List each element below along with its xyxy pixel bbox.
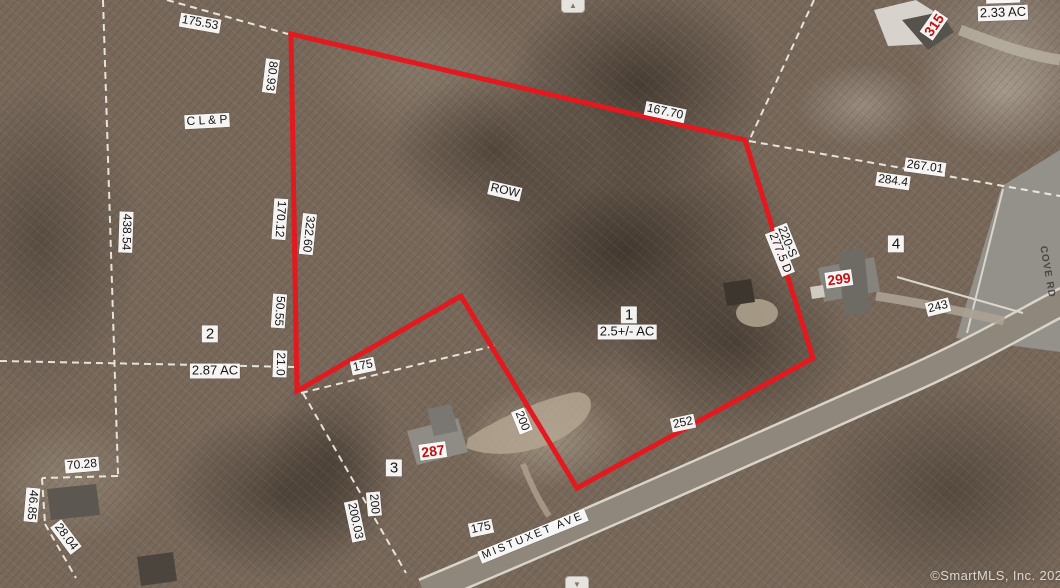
attribution-watermark: ©SmartMLS, Inc. 2021 xyxy=(930,568,1060,583)
dim-267-01: 267.01 xyxy=(904,157,946,176)
lot-number-3: 3 xyxy=(386,459,402,476)
pan-up-button[interactable]: ▲ xyxy=(561,0,585,13)
dim-175-upper: 175 xyxy=(350,357,376,375)
dim-21-0: 21.0 xyxy=(273,350,288,378)
street-mistuxet-ave: MISTUXET AVE xyxy=(477,509,588,564)
dim-46-85: 46.85 xyxy=(24,487,41,522)
house-number-315: 315 xyxy=(920,9,949,41)
dim-170-12: 170.12 xyxy=(272,198,289,240)
area-2-87-ac: 2.87 AC xyxy=(190,364,240,379)
pan-down-button[interactable]: ▼ xyxy=(565,576,589,588)
dim-175-lower: 175 xyxy=(468,519,494,537)
chevron-down-icon: ▼ xyxy=(573,580,581,588)
utility-label-clp: C L & P xyxy=(184,113,230,129)
chevron-up-icon: ▲ xyxy=(569,1,577,10)
dim-322-60: 322.60 xyxy=(299,213,317,255)
dim-243: 243 xyxy=(925,297,952,316)
lot-number-1: 1 xyxy=(621,306,637,323)
dim-80-93: 80.93 xyxy=(262,58,280,93)
house-number-287: 287 xyxy=(418,441,447,461)
dim-200-03: 200.03 xyxy=(344,500,366,543)
row-easement-label: ROW xyxy=(487,181,523,202)
lot-number-2: 2 xyxy=(202,325,218,342)
dim-252: 252 xyxy=(670,414,696,432)
area-2-33-ac: 2.33 AC xyxy=(978,5,1029,22)
aerial-parcel-map: 175.5380.93C L & P167.70315335.42.33 AC2… xyxy=(0,0,1060,588)
area-2-5-ac: 2.5+/- AC xyxy=(598,325,657,340)
dim-438-54: 438.54 xyxy=(118,211,133,252)
street-cove-rd: COVE RD xyxy=(1036,243,1057,301)
dim-175-53: 175.53 xyxy=(179,13,221,34)
house-number-299: 299 xyxy=(824,269,853,289)
dim-70-28: 70.28 xyxy=(64,457,99,474)
dim-167-70: 167.70 xyxy=(644,101,687,123)
dim-50-55: 50.55 xyxy=(271,294,287,329)
dim-284-4: 284.4 xyxy=(875,172,911,190)
dim-28-04: 28.04 xyxy=(50,519,81,554)
dim-partial-top: 335.4 xyxy=(986,0,1020,3)
lot-number-4: 4 xyxy=(888,235,904,252)
dim-200-right: 200 xyxy=(511,407,533,434)
map-annotations: 175.5380.93C L & P167.70315335.42.33 AC2… xyxy=(0,0,1060,588)
dim-200-left: 200 xyxy=(366,491,382,516)
